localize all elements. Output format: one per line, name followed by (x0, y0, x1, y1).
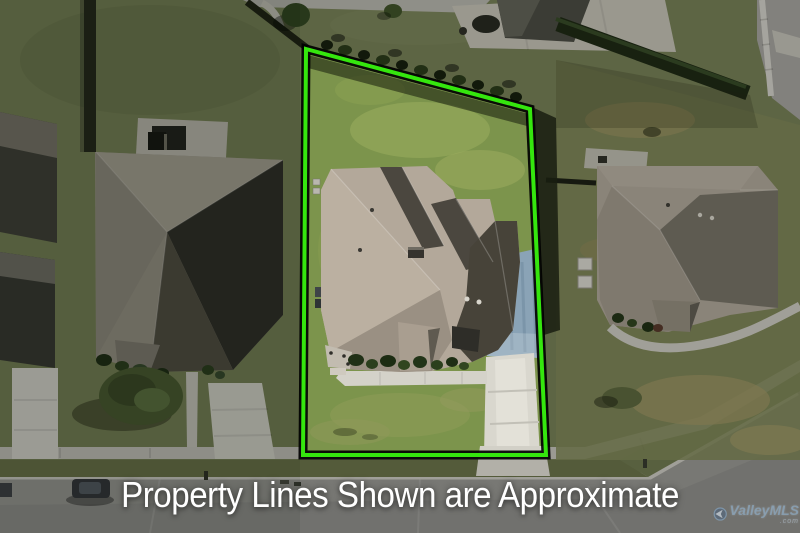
porch-steps (330, 368, 346, 375)
parked-vehicle-edge (0, 483, 12, 497)
ac-unit (313, 188, 320, 194)
front-walkway (336, 371, 487, 386)
aerial-photo (0, 0, 800, 533)
left-vignette (0, 0, 300, 533)
garage-door (452, 326, 480, 352)
mailbox (643, 459, 647, 468)
ac-unit (313, 179, 320, 185)
screenshot-root: Property Lines Shown are Approximate Val… (0, 0, 800, 533)
